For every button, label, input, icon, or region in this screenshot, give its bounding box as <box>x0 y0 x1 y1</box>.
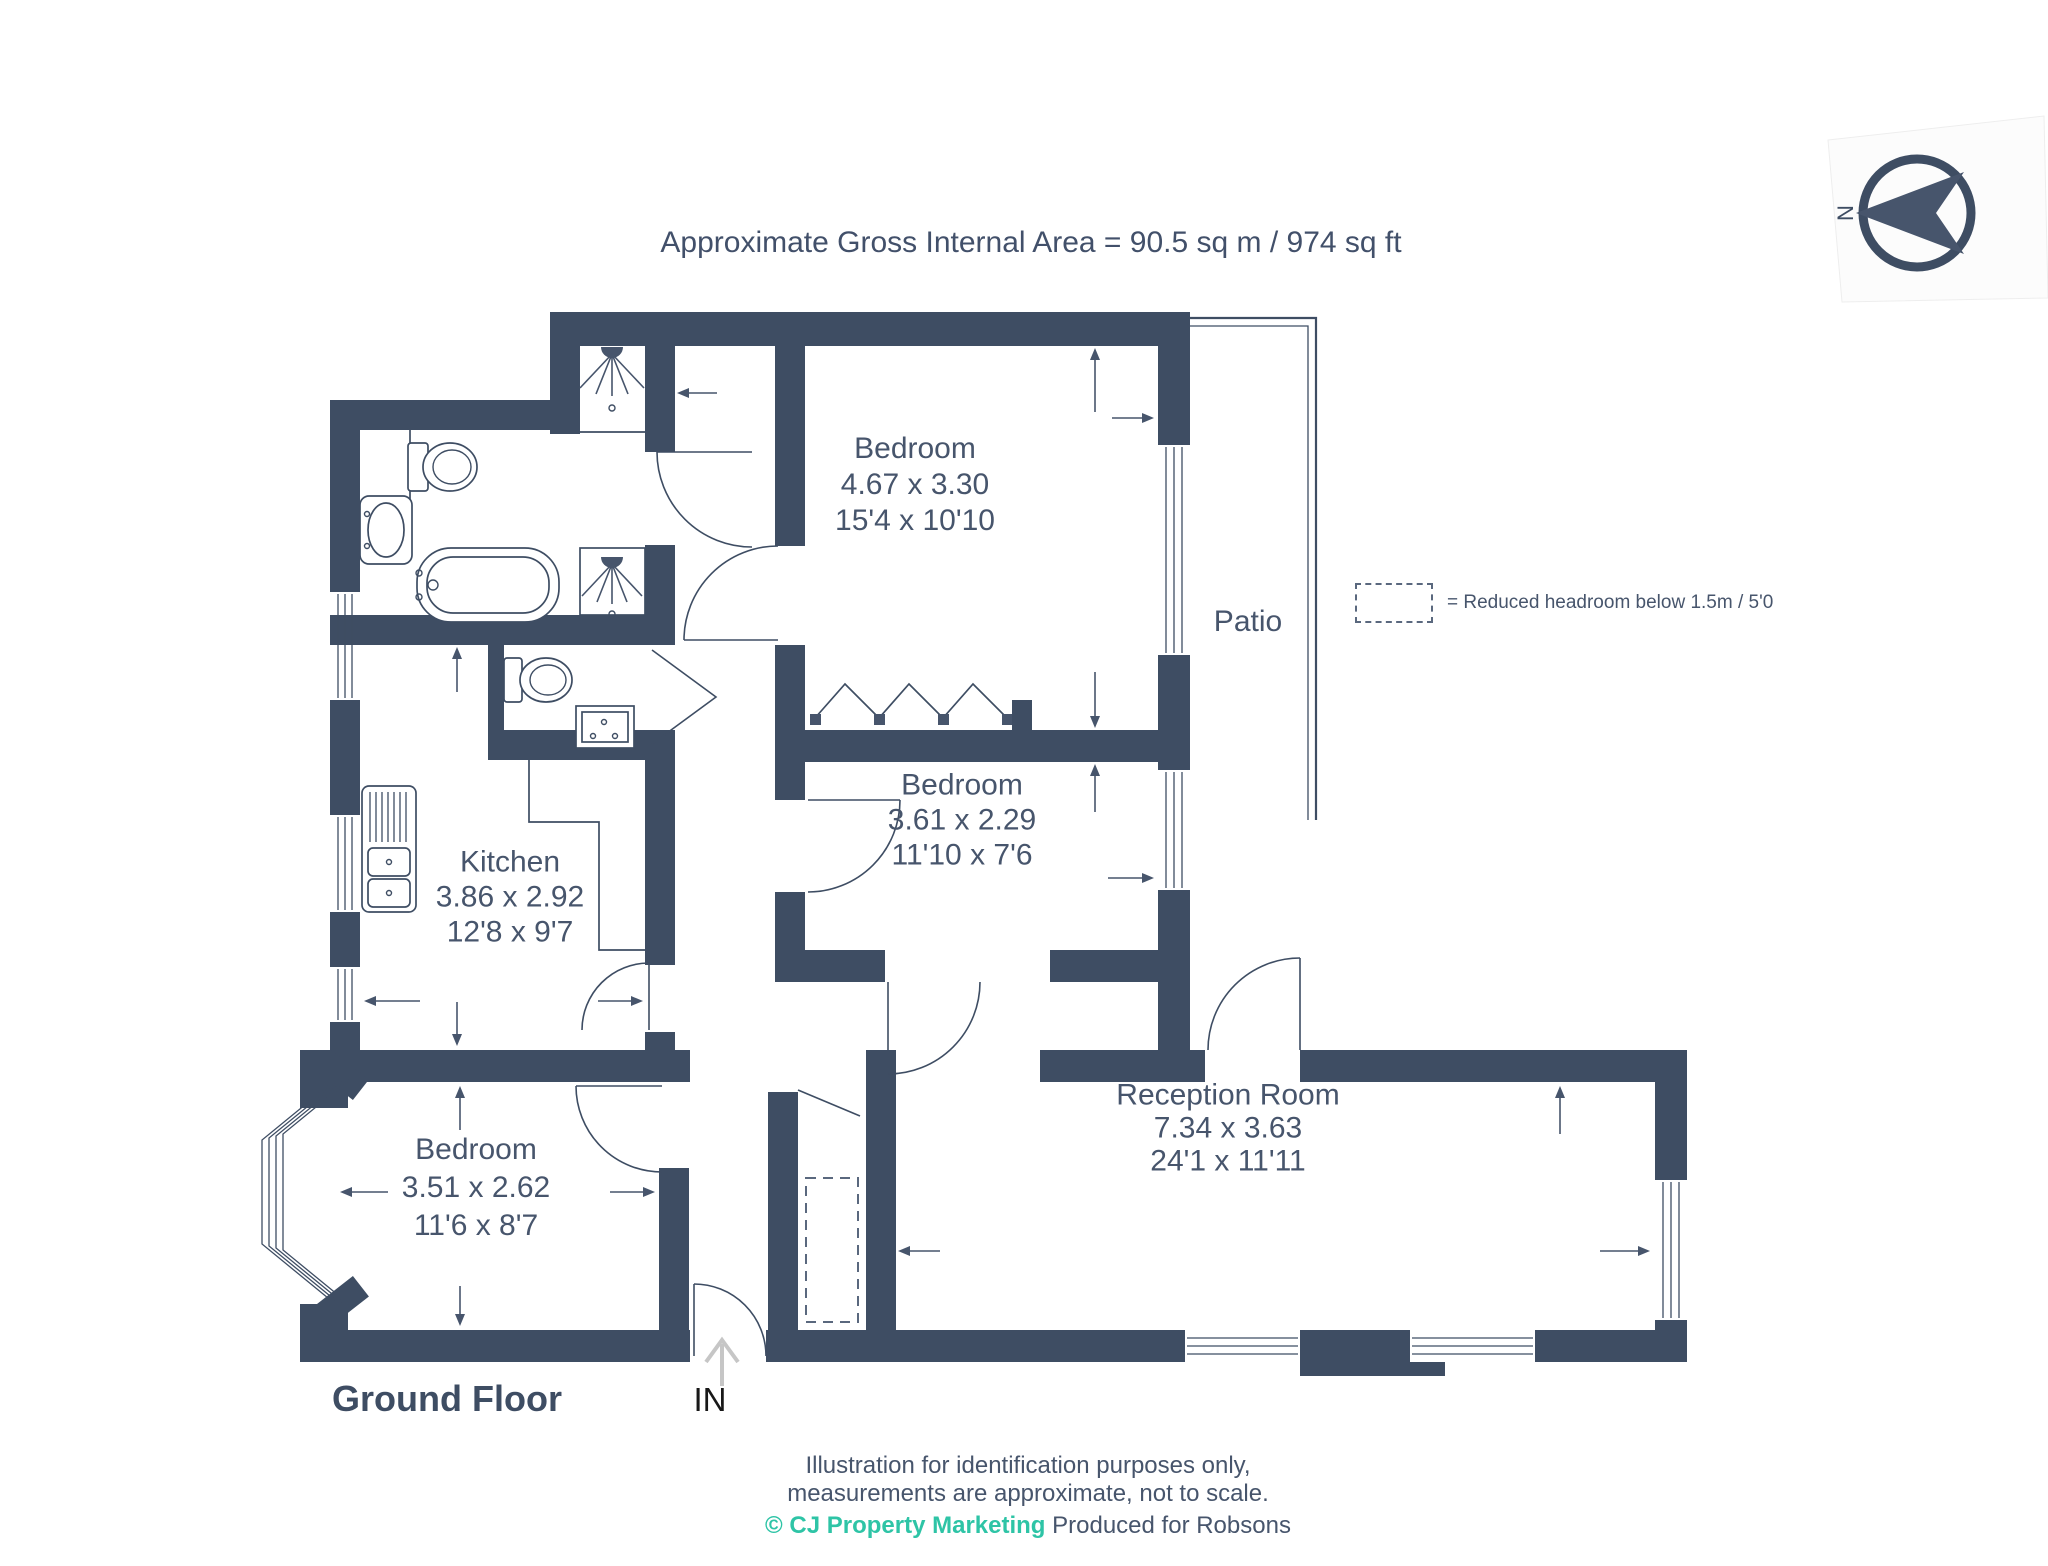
wardrobe <box>810 684 1032 732</box>
room-label-bedroom-2: Bedroom 3.61 x 2.29 11'10 x 7'6 <box>888 768 1036 873</box>
page-title: Approximate Gross Internal Area = 90.5 s… <box>660 226 1401 260</box>
bedroom-1-window <box>1166 447 1182 653</box>
bedroom-1-door <box>684 546 778 640</box>
room-dimensions-imperial: 15'4 x 10'10 <box>835 503 995 539</box>
floor-label: Ground Floor <box>332 1378 562 1420</box>
room-dimensions-metric: 4.67 x 3.30 <box>835 467 995 503</box>
bedroom-2-window <box>1166 772 1182 888</box>
footer-disclaimer-line-1: Illustration for identification purposes… <box>805 1452 1250 1480</box>
kitchen-sink-unit <box>362 786 416 912</box>
room-name: Bedroom <box>835 431 995 467</box>
room-dimensions-metric: 3.51 x 2.62 <box>402 1169 550 1207</box>
reduced-headroom-legend-swatch <box>1355 583 1433 623</box>
room-name: Reception Room <box>1116 1079 1339 1112</box>
footer-credit-line: © CJ Property Marketing Produced for Rob… <box>765 1512 1291 1540</box>
front-door <box>694 1284 766 1356</box>
room-name: Kitchen <box>436 845 584 880</box>
compass-north-label: N <box>1833 205 1858 221</box>
reduced-headroom-legend-text: = Reduced headroom below 1.5m / 5'0 <box>1447 592 1773 614</box>
compass-icon: N <box>1828 116 2048 302</box>
room-name: Bedroom <box>888 768 1036 803</box>
shower-head-1 <box>580 347 644 411</box>
shower-symbols <box>580 347 644 617</box>
room-dimensions-metric: 3.86 x 2.92 <box>436 880 584 915</box>
reception-garden-door <box>1208 958 1300 1050</box>
kitchen-door <box>582 963 649 1030</box>
room-label-kitchen: Kitchen 3.86 x 2.92 12'8 x 9'7 <box>436 845 584 950</box>
wc-toilet <box>504 658 572 702</box>
bathroom-window <box>338 594 352 698</box>
room-dimensions-metric: 3.61 x 2.29 <box>888 803 1036 838</box>
bedroom-2-door <box>808 800 900 892</box>
room-dimensions-imperial: 24'1 x 11'11 <box>1116 1145 1339 1178</box>
bathtub <box>416 548 559 622</box>
room-name: Bedroom <box>402 1131 550 1169</box>
toilet <box>408 443 477 491</box>
floorplan-canvas: N Approximate Gross Internal Area = 90.5… <box>0 0 2048 1566</box>
bay-window <box>262 1080 349 1304</box>
reception-bottom-window-2 <box>1412 1338 1533 1354</box>
room-dimensions-imperial: 11'6 x 8'7 <box>402 1207 550 1245</box>
wc-door <box>652 650 716 744</box>
reception-right-window <box>1663 1182 1679 1318</box>
patio-label: Patio <box>1214 605 1282 639</box>
bathroom-fixtures <box>360 430 645 622</box>
room-label-bedroom-3: Bedroom 3.51 x 2.62 11'6 x 8'7 <box>402 1131 550 1245</box>
entrance-arrow-icon <box>706 1340 738 1386</box>
footer-credit: © CJ Property Marketing <box>765 1512 1045 1539</box>
hall-door <box>888 982 980 1074</box>
room-dimensions-imperial: 11'10 x 7'6 <box>888 838 1036 873</box>
entrance-label: IN <box>694 1381 727 1419</box>
bathroom-door <box>657 452 752 547</box>
reduced-headroom-area <box>806 1178 858 1322</box>
kitchen-window-2 <box>338 969 352 1020</box>
basin <box>360 496 412 564</box>
reception-bottom-window-1 <box>1187 1338 1298 1354</box>
wc-vanity <box>576 706 634 748</box>
footer-produced-for: Produced for Robsons <box>1052 1512 1291 1539</box>
shower-head-2 <box>582 557 642 617</box>
patio-outline <box>1190 318 1316 820</box>
room-label-reception-room: Reception Room 7.34 x 3.63 24'1 x 11'11 <box>1116 1079 1339 1178</box>
room-dimensions-metric: 7.34 x 3.63 <box>1116 1112 1339 1145</box>
bedroom-3-door <box>576 1086 662 1172</box>
closet-door <box>798 1090 860 1116</box>
room-label-bedroom-1: Bedroom 4.67 x 3.30 15'4 x 10'10 <box>835 431 995 539</box>
room-dimensions-imperial: 12'8 x 9'7 <box>436 915 584 950</box>
footer-disclaimer-line-2: measurements are approximate, not to sca… <box>787 1480 1269 1508</box>
kitchen-window-1 <box>338 817 352 910</box>
